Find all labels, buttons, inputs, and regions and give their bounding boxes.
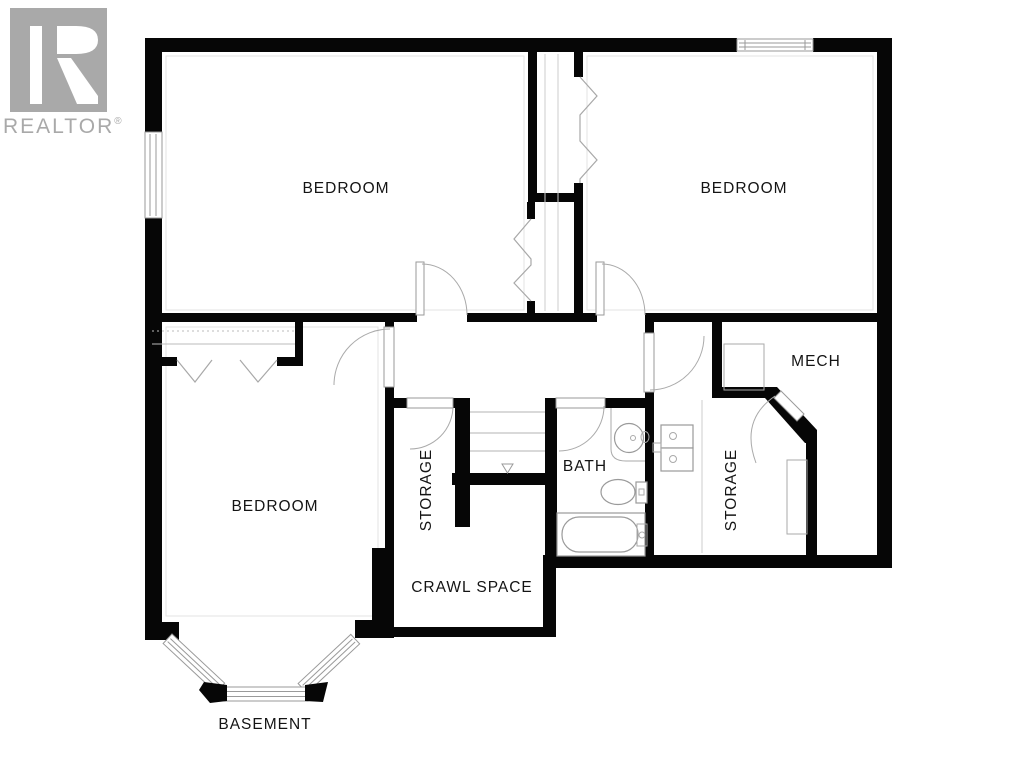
door-storage-left [407, 398, 453, 449]
room-label-bedroom-top-right: BEDROOM [700, 180, 787, 197]
wall-segment [574, 52, 583, 77]
wall-segment [145, 313, 417, 322]
room-label-crawl-space: CRAWL SPACE [411, 579, 533, 596]
wall-segment [645, 390, 654, 555]
wall-segment [145, 38, 737, 52]
wall-segment [543, 568, 556, 637]
wall-segment [712, 387, 767, 398]
stair-break-lines [514, 54, 597, 311]
walls [145, 38, 892, 640]
wall-segment [392, 398, 408, 408]
wall-segment [806, 437, 817, 557]
bay-corner-block [305, 682, 328, 702]
wall-segment [385, 398, 394, 548]
room-label-mech: MECH [791, 353, 841, 370]
floor-plan-page: REALTOR® [0, 0, 1023, 768]
doors [334, 262, 804, 463]
door-storage-right-entry [644, 333, 704, 392]
toilet [601, 480, 647, 505]
realtor-logo: REALTOR® [3, 8, 122, 138]
wall-segment [467, 313, 597, 322]
realtor-logo-text: REALTOR® [3, 115, 122, 138]
stair-direction-arrow [502, 464, 513, 473]
window-left-bedroom [145, 132, 162, 218]
realtor-logo-r-bar [30, 26, 42, 104]
wall-segment [145, 38, 162, 134]
wall-segment [452, 473, 557, 485]
wall-face-lines [166, 56, 873, 616]
wall-segment [528, 52, 537, 195]
room-label-storage-left: STORAGE [418, 449, 435, 532]
wall-segment [877, 38, 892, 568]
wall-segment [277, 357, 303, 366]
bifold-door [177, 360, 212, 382]
window-top-bedroom [737, 39, 813, 51]
door-bedroom-lower-left [334, 327, 394, 387]
room-label-bath: BATH [563, 458, 607, 475]
wall-segment [455, 398, 470, 527]
floor-plan: REALTOR® [0, 0, 1023, 768]
door-bedroom-top-left [416, 262, 467, 315]
wall-segment [527, 202, 535, 219]
wall-segment [645, 313, 892, 322]
room-label-storage-right: STORAGE [723, 449, 740, 532]
wall-segment [145, 218, 162, 640]
floor-title: BASEMENT [218, 716, 311, 733]
wall-segment [645, 313, 654, 335]
realtor-logo-r-bowl [57, 26, 98, 54]
laundry-tap [653, 443, 661, 452]
wall-segment [372, 627, 556, 637]
door-bath [556, 398, 605, 451]
sink [615, 424, 644, 453]
bay-corner-block [199, 682, 227, 703]
wall-segment [543, 555, 892, 568]
room-label-bedroom-lower-left: BEDROOM [231, 498, 318, 515]
room-label-bedroom-top-left: BEDROOM [302, 180, 389, 197]
bay-window [163, 634, 360, 703]
bathtub [557, 513, 647, 556]
closet [152, 331, 295, 382]
wall-segment [528, 193, 577, 202]
storage-shelf [787, 460, 807, 534]
fixtures [557, 344, 807, 556]
stairs-down [470, 412, 545, 473]
bifold-door [240, 360, 277, 382]
wall-segment [145, 357, 177, 366]
wall-segment [574, 183, 583, 313]
wall-segment [712, 318, 722, 390]
furnace [724, 344, 764, 390]
door-bedroom-top-right [596, 262, 645, 315]
wall-segment [372, 548, 394, 630]
room-labels: BEDROOM BEDROOM BEDROOM MECH BATH STORAG… [218, 180, 840, 733]
wall-segment [527, 301, 535, 313]
washer-dryer [653, 425, 693, 471]
registered-mark: ® [114, 116, 122, 127]
